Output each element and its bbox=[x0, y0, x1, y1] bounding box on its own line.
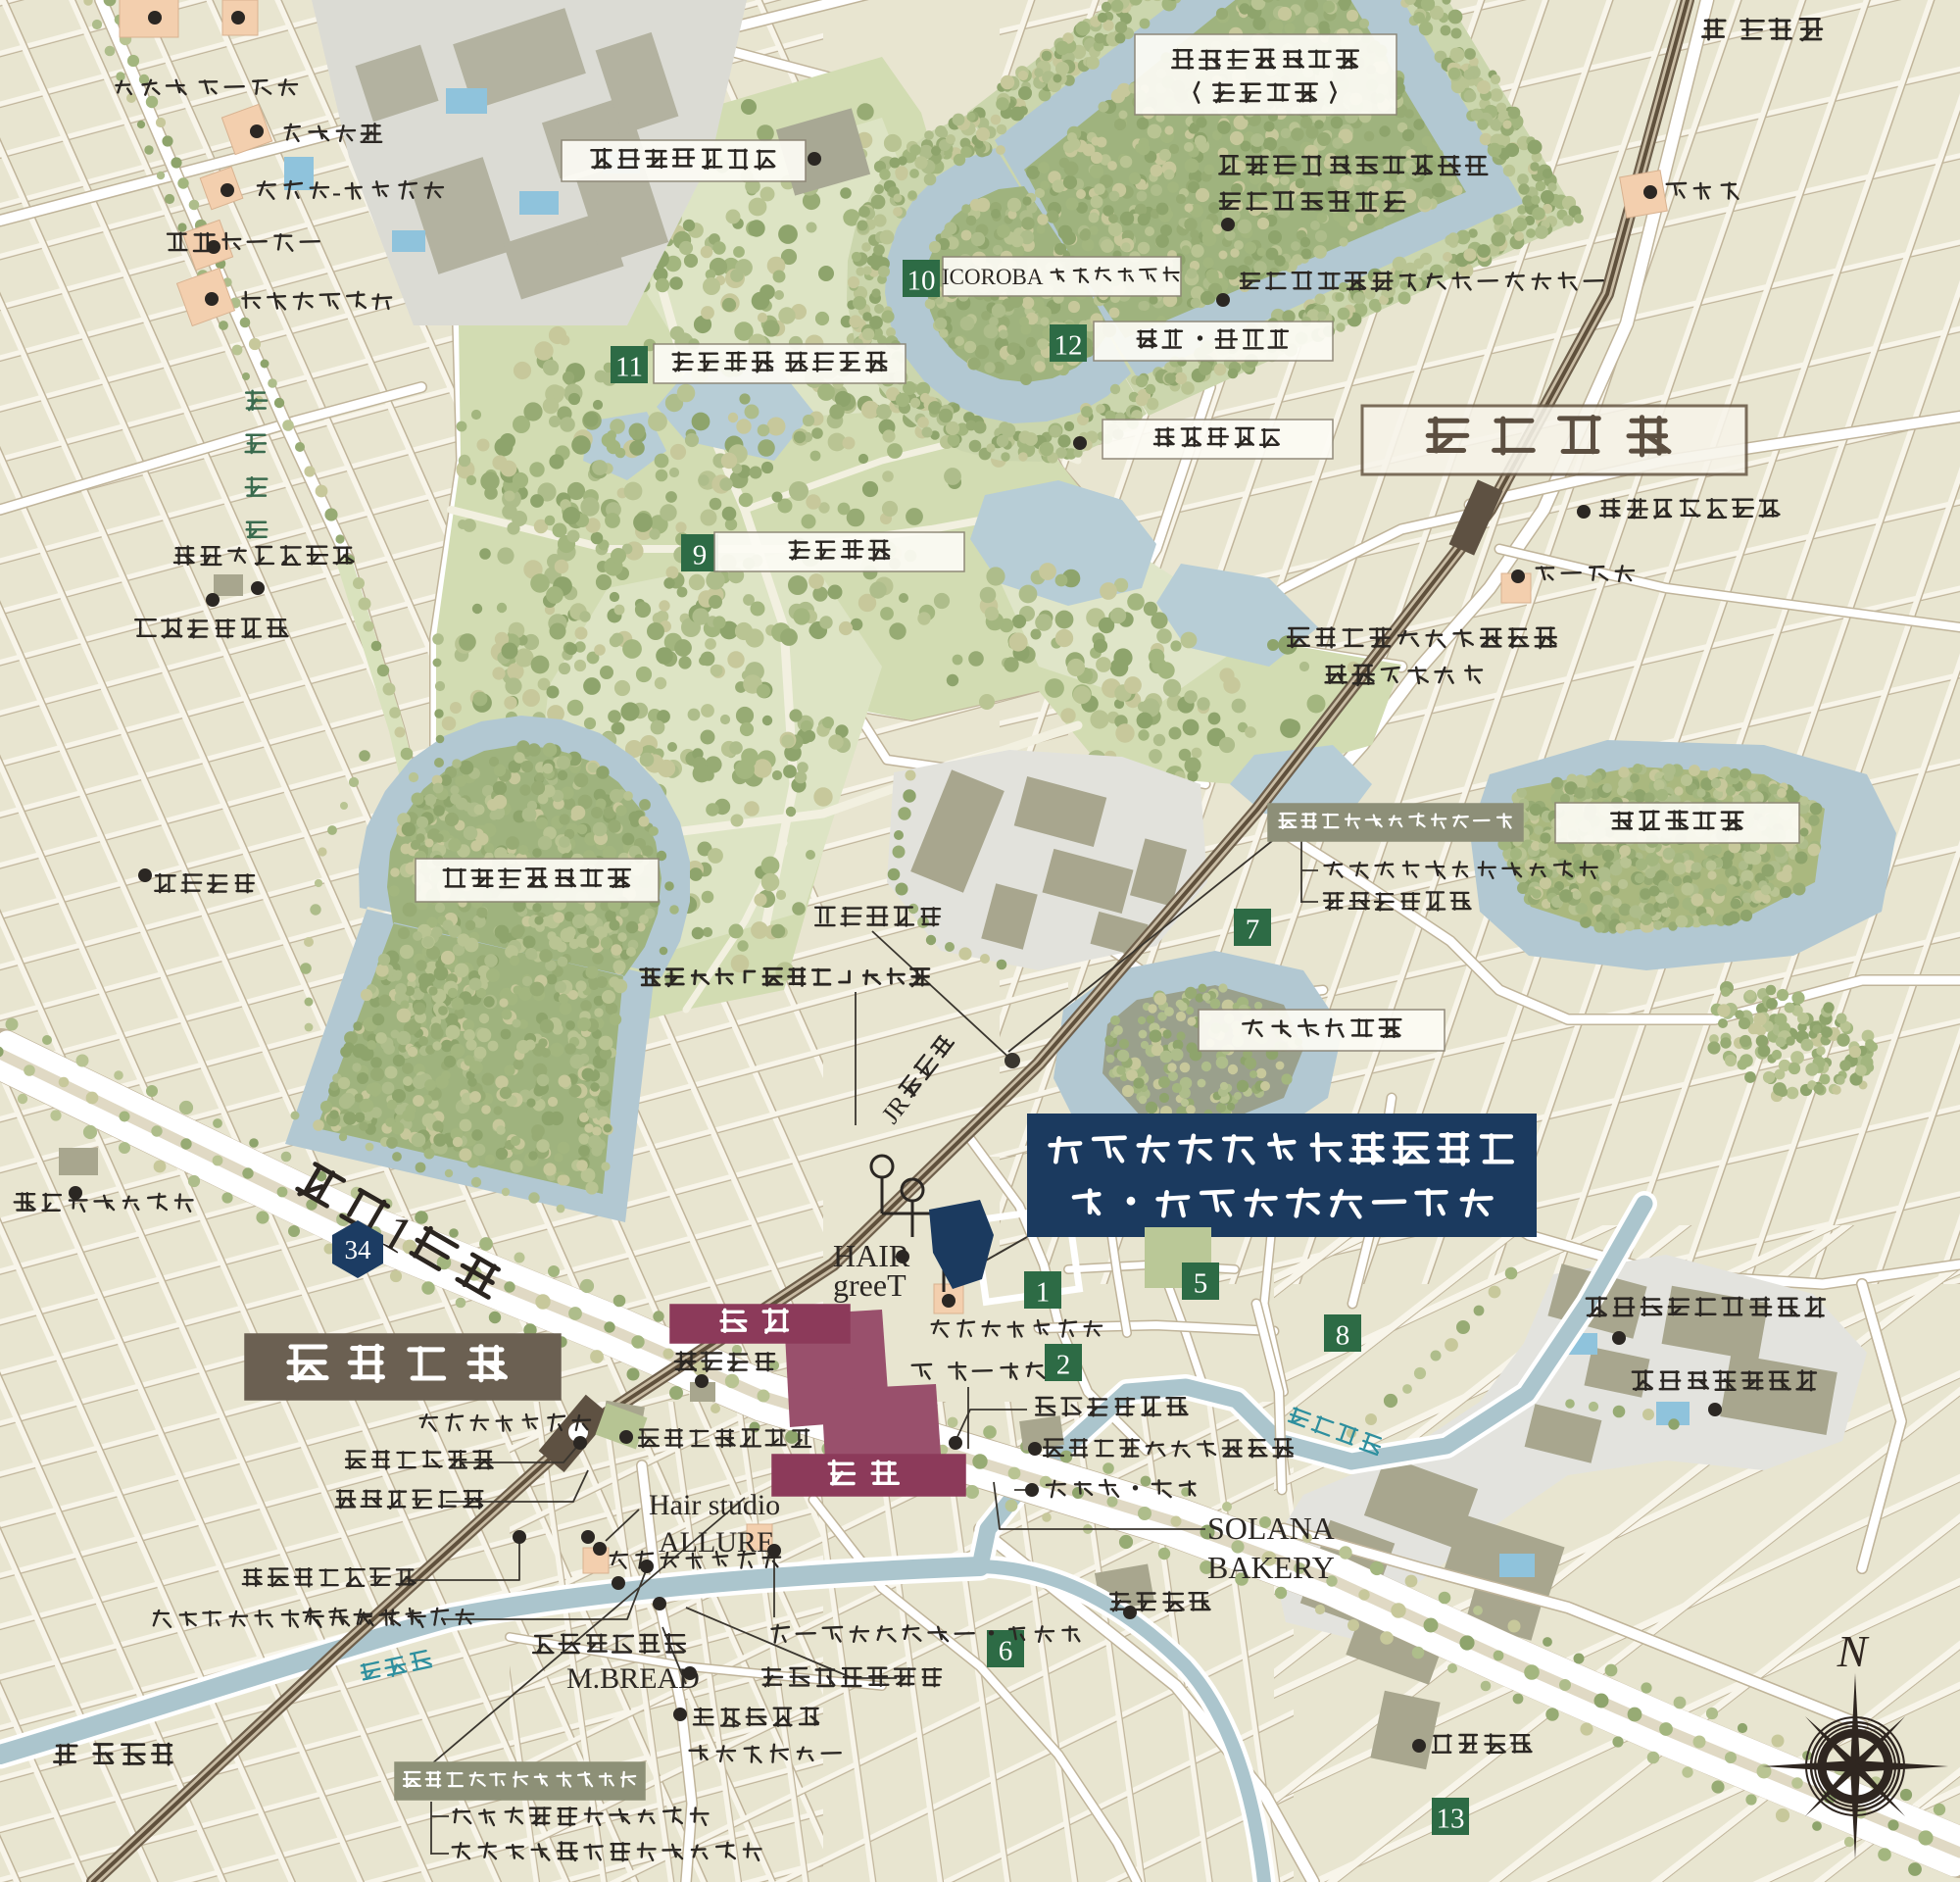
svg-text:M.BREAD: M.BREAD bbox=[566, 1662, 700, 1695]
svg-text:greeT: greeT bbox=[833, 1267, 906, 1303]
svg-text:1: 1 bbox=[1036, 1276, 1051, 1308]
svg-text:8: 8 bbox=[1336, 1319, 1350, 1351]
svg-text:Hair studio: Hair studio bbox=[649, 1489, 780, 1521]
svg-text:ICOROBA: ICOROBA bbox=[942, 265, 1044, 289]
svg-text:11: 11 bbox=[615, 351, 643, 382]
svg-text:SOLANA: SOLANA bbox=[1207, 1511, 1335, 1546]
svg-text:6: 6 bbox=[999, 1635, 1013, 1666]
svg-text:5: 5 bbox=[1194, 1267, 1208, 1299]
svg-text:34: 34 bbox=[345, 1235, 372, 1264]
svg-text:N: N bbox=[1837, 1626, 1870, 1676]
svg-text:2: 2 bbox=[1056, 1349, 1071, 1380]
svg-text:7: 7 bbox=[1246, 914, 1260, 945]
svg-text:10: 10 bbox=[907, 265, 936, 296]
svg-text:-: - bbox=[332, 177, 341, 207]
svg-text:12: 12 bbox=[1054, 329, 1083, 361]
svg-text:9: 9 bbox=[693, 539, 708, 570]
svg-text:13: 13 bbox=[1437, 1803, 1465, 1834]
svg-text:BAKERY: BAKERY bbox=[1207, 1550, 1335, 1585]
